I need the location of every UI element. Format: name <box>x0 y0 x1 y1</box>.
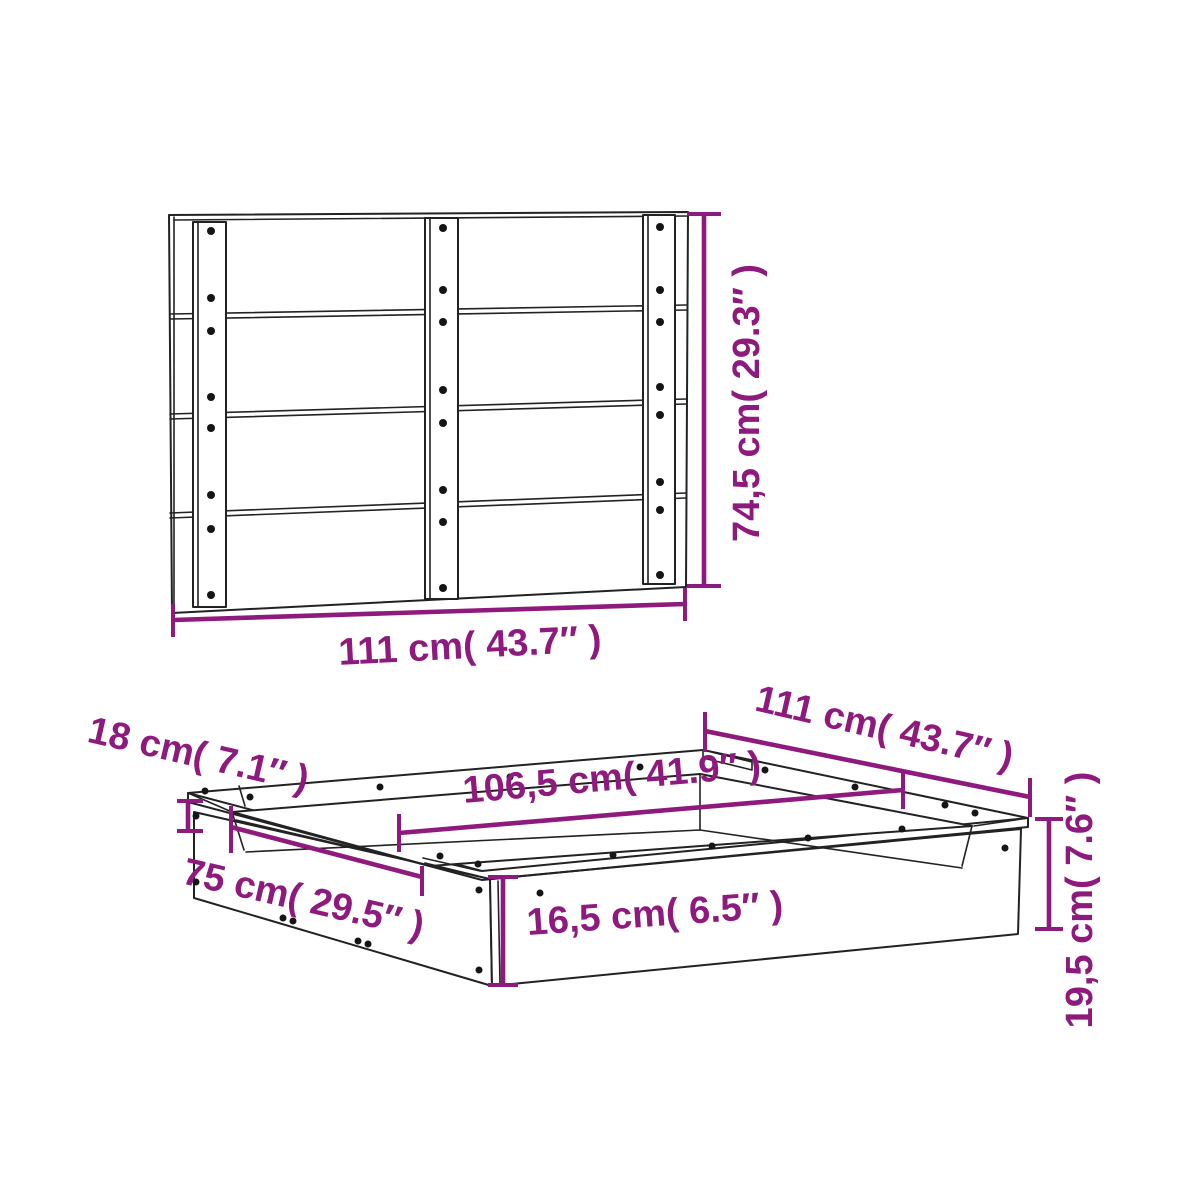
sandbox-perspective-view: 18 cm( 7.1″ ) 75 cm( 29.5″ ) 106,5 cm( 4… <box>84 678 1101 1028</box>
panel-height-label: 74,5 cm( 29.3″ ) <box>726 264 768 542</box>
dimension-diagram: 111 cm( 43.7″ ) 74,5 cm( 29.3″ ) <box>0 0 1200 1200</box>
diagram-page: 111 cm( 43.7″ ) 74,5 cm( 29.3″ ) <box>0 0 1200 1200</box>
panel-front-view: 111 cm( 43.7″ ) 74,5 cm( 29.3″ ) <box>169 212 768 674</box>
sandbox-total-height-label: 19,5 cm( 7.6″ ) <box>1059 772 1101 1029</box>
sandbox-outer-length-label: 111 cm( 43.7″ ) <box>751 678 1017 778</box>
sandbox-total-height-dimension: 19,5 cm( 7.6″ ) <box>1035 772 1101 1029</box>
panel-height-dimension: 74,5 cm( 29.3″ ) <box>687 214 768 586</box>
sandbox-seat-width-label: 18 cm( 7.1″ ) <box>84 709 313 801</box>
panel-width-label: 111 cm( 43.7″ ) <box>337 618 602 674</box>
